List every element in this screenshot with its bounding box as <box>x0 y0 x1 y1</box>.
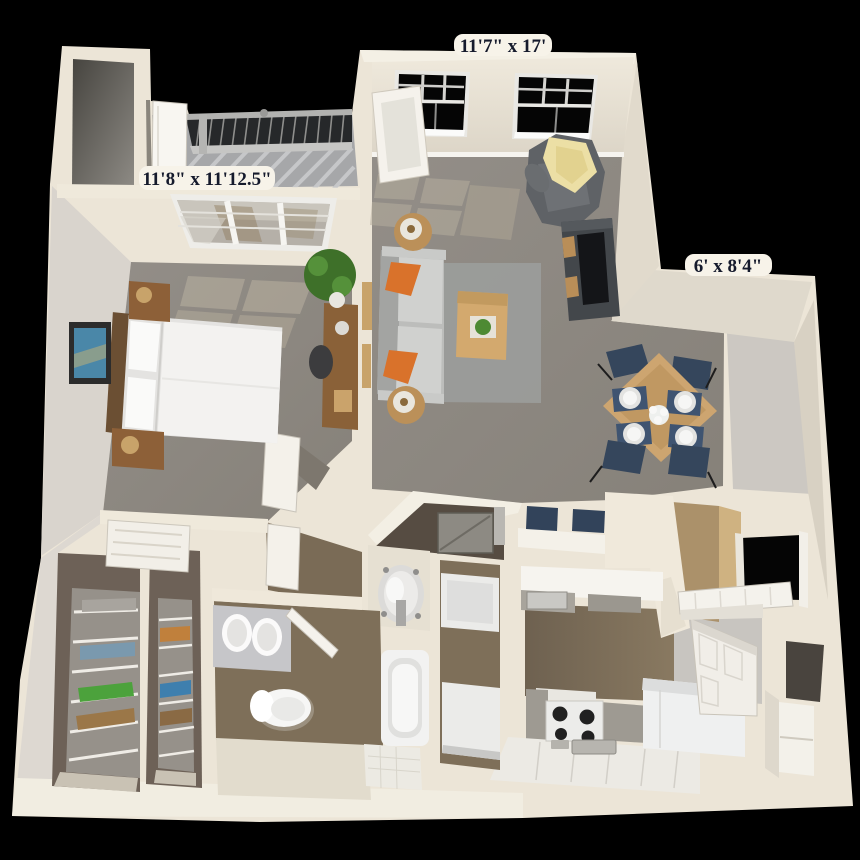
svg-text:11'7" x 17': 11'7" x 17' <box>460 36 547 57</box>
svg-text:6' x 8'4": 6' x 8'4" <box>694 256 763 277</box>
svg-text:11'8" x 11'12.5": 11'8" x 11'12.5" <box>142 169 271 190</box>
